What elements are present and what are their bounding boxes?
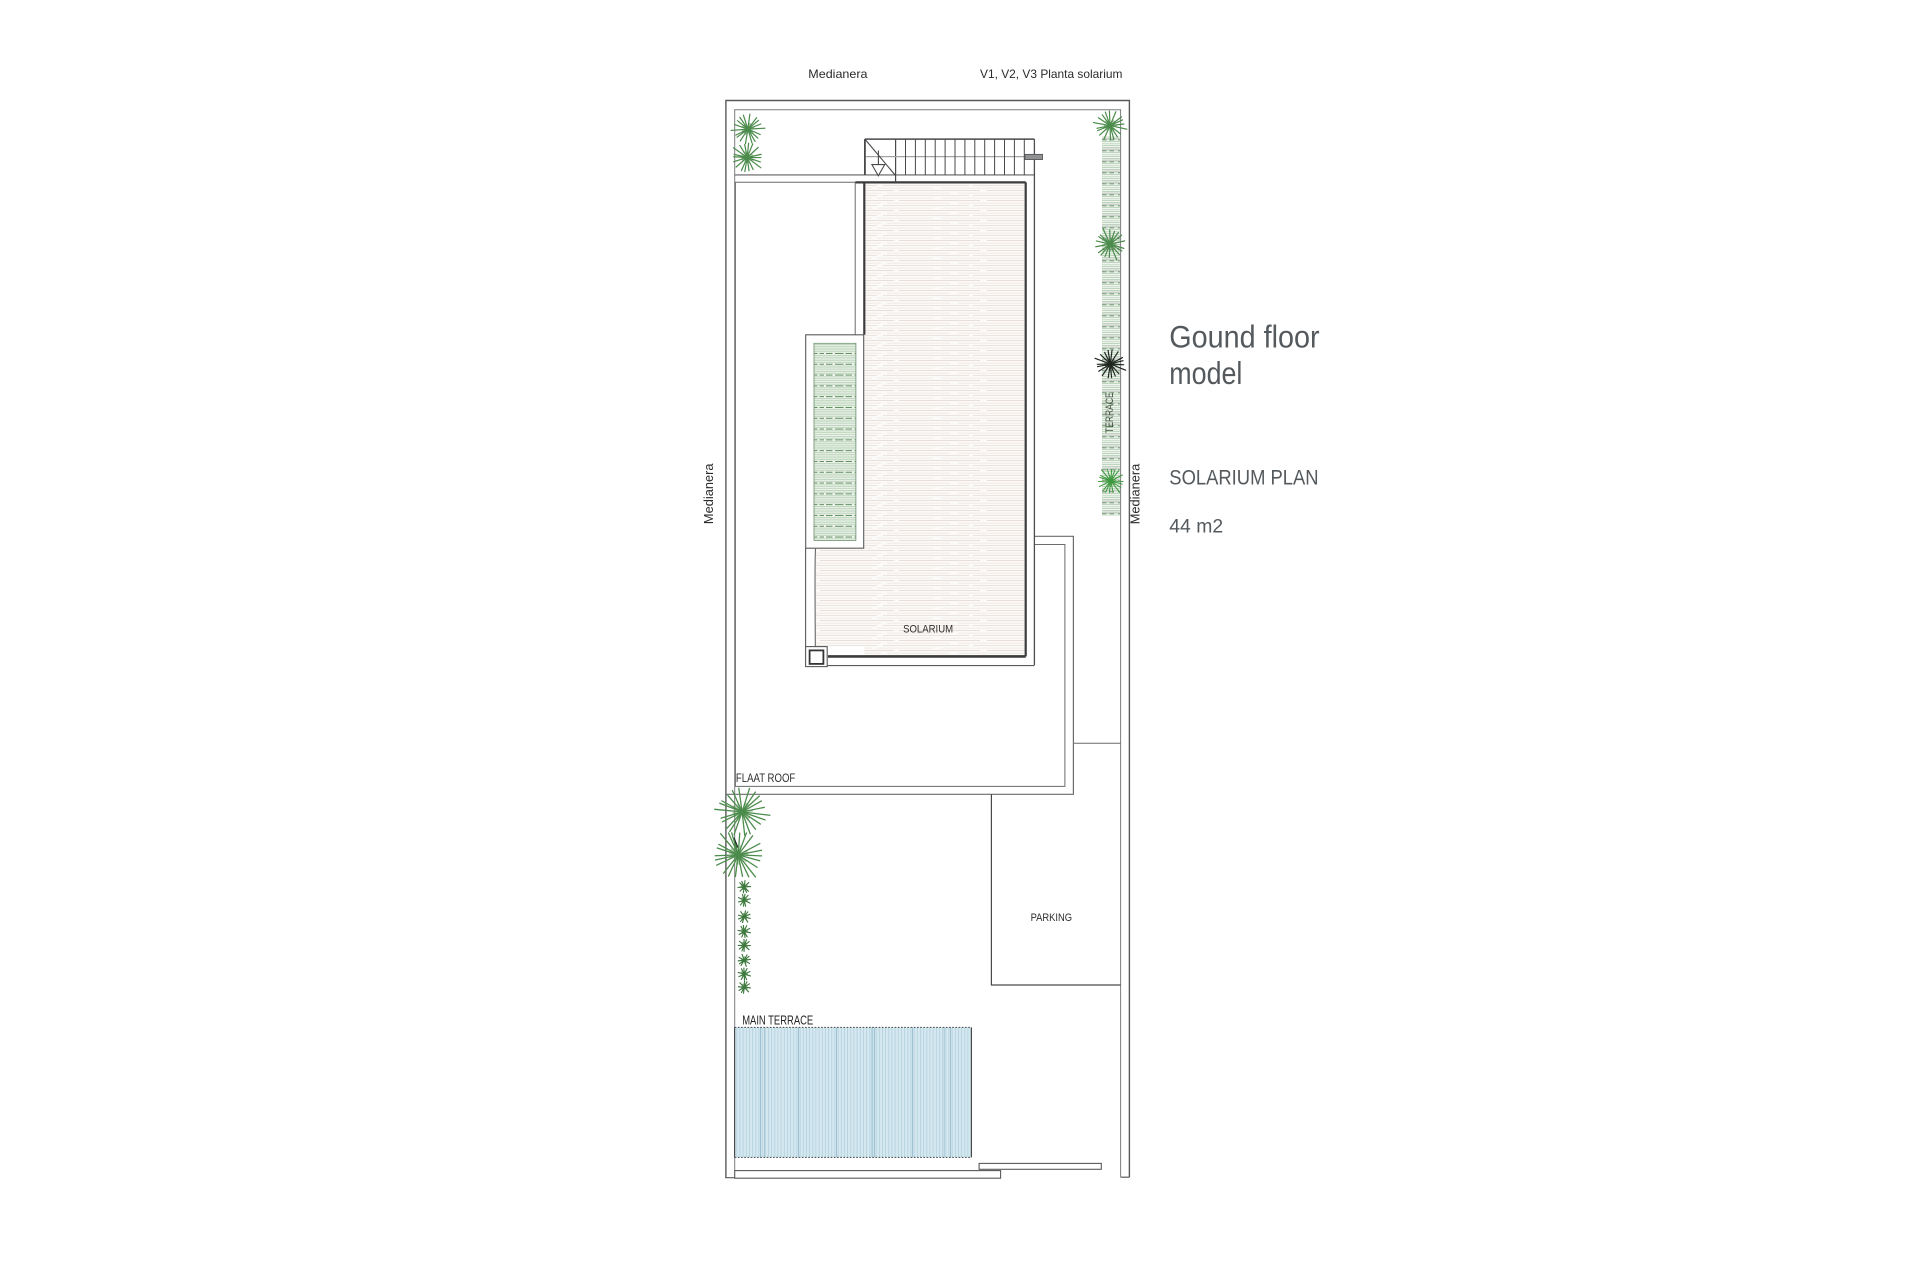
svg-text:Gound floor: Gound floor (1169, 319, 1320, 355)
svg-text:model: model (1169, 355, 1242, 391)
svg-text:FLAAT ROOF: FLAAT ROOF (736, 771, 795, 785)
svg-text:Medianera: Medianera (702, 464, 716, 525)
svg-text:Medianera: Medianera (1129, 464, 1143, 525)
svg-text:SOLARIUM: SOLARIUM (903, 623, 953, 635)
svg-text:PARKING: PARKING (1031, 912, 1073, 924)
svg-text:TERRACE: TERRACE (1104, 392, 1116, 433)
svg-text:V1, V2, V3 Planta solarium: V1, V2, V3 Planta solarium (980, 68, 1123, 81)
svg-text:44 m2: 44 m2 (1169, 515, 1223, 537)
svg-text:MAIN TERRACE: MAIN TERRACE (742, 1013, 813, 1027)
svg-text:Medianera: Medianera (808, 68, 868, 81)
svg-text:SOLARIUM PLAN: SOLARIUM PLAN (1169, 467, 1318, 490)
